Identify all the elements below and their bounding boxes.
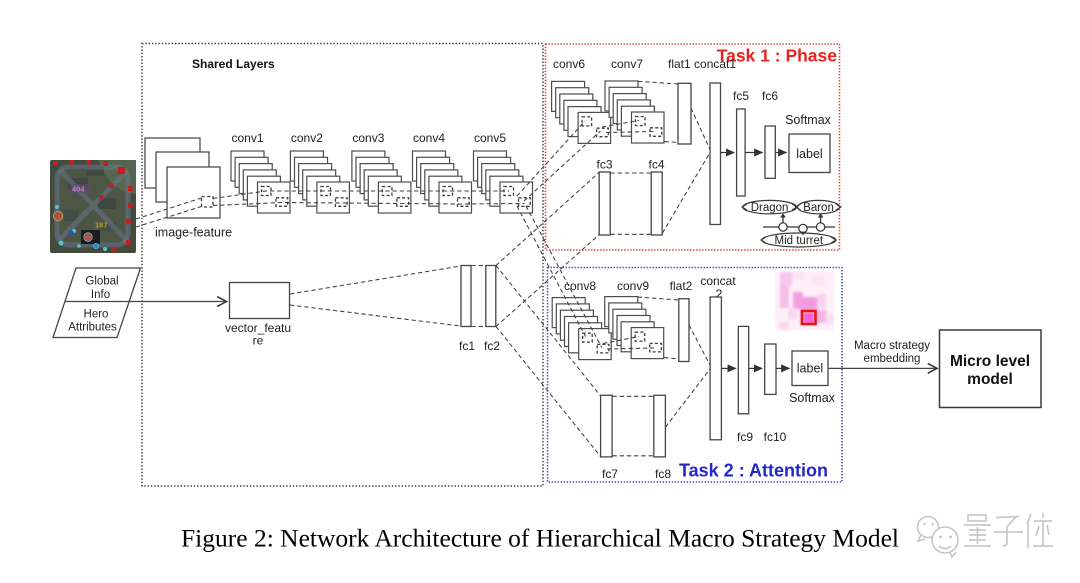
svg-text:model: model: [967, 371, 1013, 388]
svg-text:conv2: conv2: [291, 131, 323, 145]
svg-text:fc6: fc6: [762, 89, 778, 103]
svg-text:Attributes: Attributes: [68, 322, 117, 334]
svg-text:Micro level: Micro level: [950, 353, 1030, 370]
svg-text:187: 187: [95, 221, 108, 230]
svg-text:Task 2 : Attention: Task 2 : Attention: [679, 461, 828, 481]
svg-text:conv1: conv1: [231, 131, 263, 145]
svg-text:Figure 2: Network Architecture: Figure 2: Network Architecture of Hierar…: [181, 524, 899, 553]
svg-text:conv9: conv9: [617, 279, 649, 293]
svg-text:Dragon: Dragon: [751, 202, 789, 214]
svg-text:Global: Global: [85, 276, 118, 288]
svg-text:Info: Info: [91, 289, 110, 301]
svg-text:fc1: fc1: [459, 339, 475, 353]
svg-text:Softmax: Softmax: [789, 391, 836, 405]
svg-text:fc8: fc8: [655, 467, 671, 481]
svg-text:Mid turret: Mid turret: [775, 235, 824, 247]
svg-text:conv5: conv5: [474, 131, 506, 145]
svg-text:conv3: conv3: [352, 131, 384, 145]
svg-text:Baron: Baron: [803, 202, 834, 214]
svg-text:Shared Layers: Shared Layers: [192, 57, 275, 71]
svg-text:conv4: conv4: [413, 131, 445, 145]
svg-text:fc4: fc4: [648, 158, 664, 172]
svg-text:concat: concat: [700, 274, 736, 288]
svg-text:conv7: conv7: [611, 57, 643, 71]
svg-text:404: 404: [72, 185, 85, 194]
svg-text:Softmax: Softmax: [785, 113, 832, 127]
svg-text:image-feature: image-feature: [155, 226, 232, 240]
svg-text:fc2: fc2: [484, 339, 500, 353]
svg-text:flat1 concat1: flat1 concat1: [668, 57, 736, 71]
svg-text:flat2: flat2: [670, 279, 693, 293]
svg-text:embedding: embedding: [864, 353, 921, 365]
svg-text:label: label: [797, 362, 823, 376]
svg-text:Hero: Hero: [84, 309, 109, 321]
svg-text:conv8: conv8: [564, 279, 596, 293]
svg-text:Macro strategy: Macro strategy: [854, 340, 930, 352]
svg-text:fc3: fc3: [596, 158, 612, 172]
svg-text:fc7: fc7: [602, 467, 618, 481]
svg-text:fc10: fc10: [764, 430, 787, 444]
svg-text:fc9: fc9: [737, 430, 753, 444]
svg-text:re: re: [253, 334, 264, 348]
svg-text:conv6: conv6: [553, 57, 585, 71]
svg-text:fc5: fc5: [733, 89, 749, 103]
svg-text:label: label: [796, 147, 822, 161]
